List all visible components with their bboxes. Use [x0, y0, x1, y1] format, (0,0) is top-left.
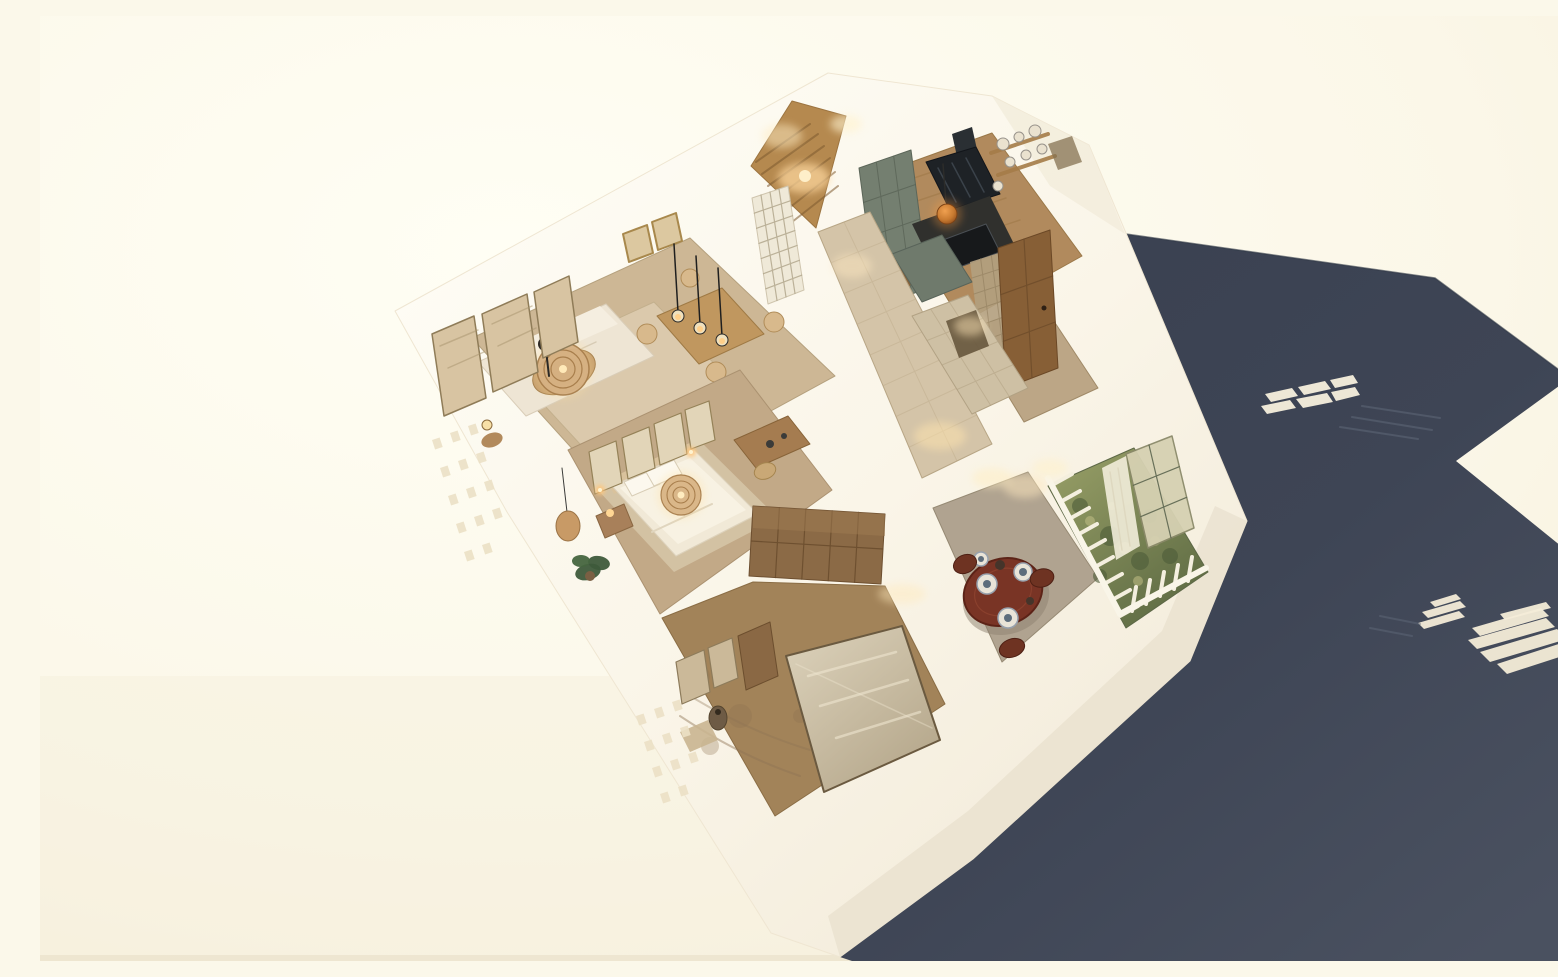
- entry-door-handle: [1042, 306, 1047, 311]
- floorplan-figure: [40, 16, 1558, 961]
- wall-edge-glow: [1032, 459, 1068, 477]
- hall-ceiling-light: [799, 170, 811, 182]
- vase-mouth: [715, 709, 721, 715]
- wall-edge-glow: [830, 115, 862, 133]
- copper-pendant-lamp: [937, 204, 957, 224]
- plant-pot: [585, 571, 595, 581]
- plant-leaves: [572, 555, 590, 567]
- wall-edge-glow: [762, 124, 802, 148]
- wall-edge-glow: [972, 468, 1012, 488]
- corridor-glow-south: [914, 422, 966, 450]
- corridor-glow-north: [832, 254, 872, 278]
- bed-chandelier-bulb: [678, 492, 685, 499]
- wicker-lantern: [556, 511, 580, 541]
- bathroom-glow: [954, 316, 986, 336]
- chandelier-bulb: [559, 365, 567, 373]
- gallery-frame: [685, 401, 715, 449]
- living-wall-frame: [534, 276, 578, 358]
- side-table-lamp: [482, 420, 492, 430]
- study-frame: [708, 638, 738, 688]
- wall-edge-glow: [878, 584, 926, 604]
- scene-shapes: [40, 16, 1558, 961]
- nightstand-lamp: [606, 509, 614, 517]
- floorplan-render: [40, 16, 1558, 961]
